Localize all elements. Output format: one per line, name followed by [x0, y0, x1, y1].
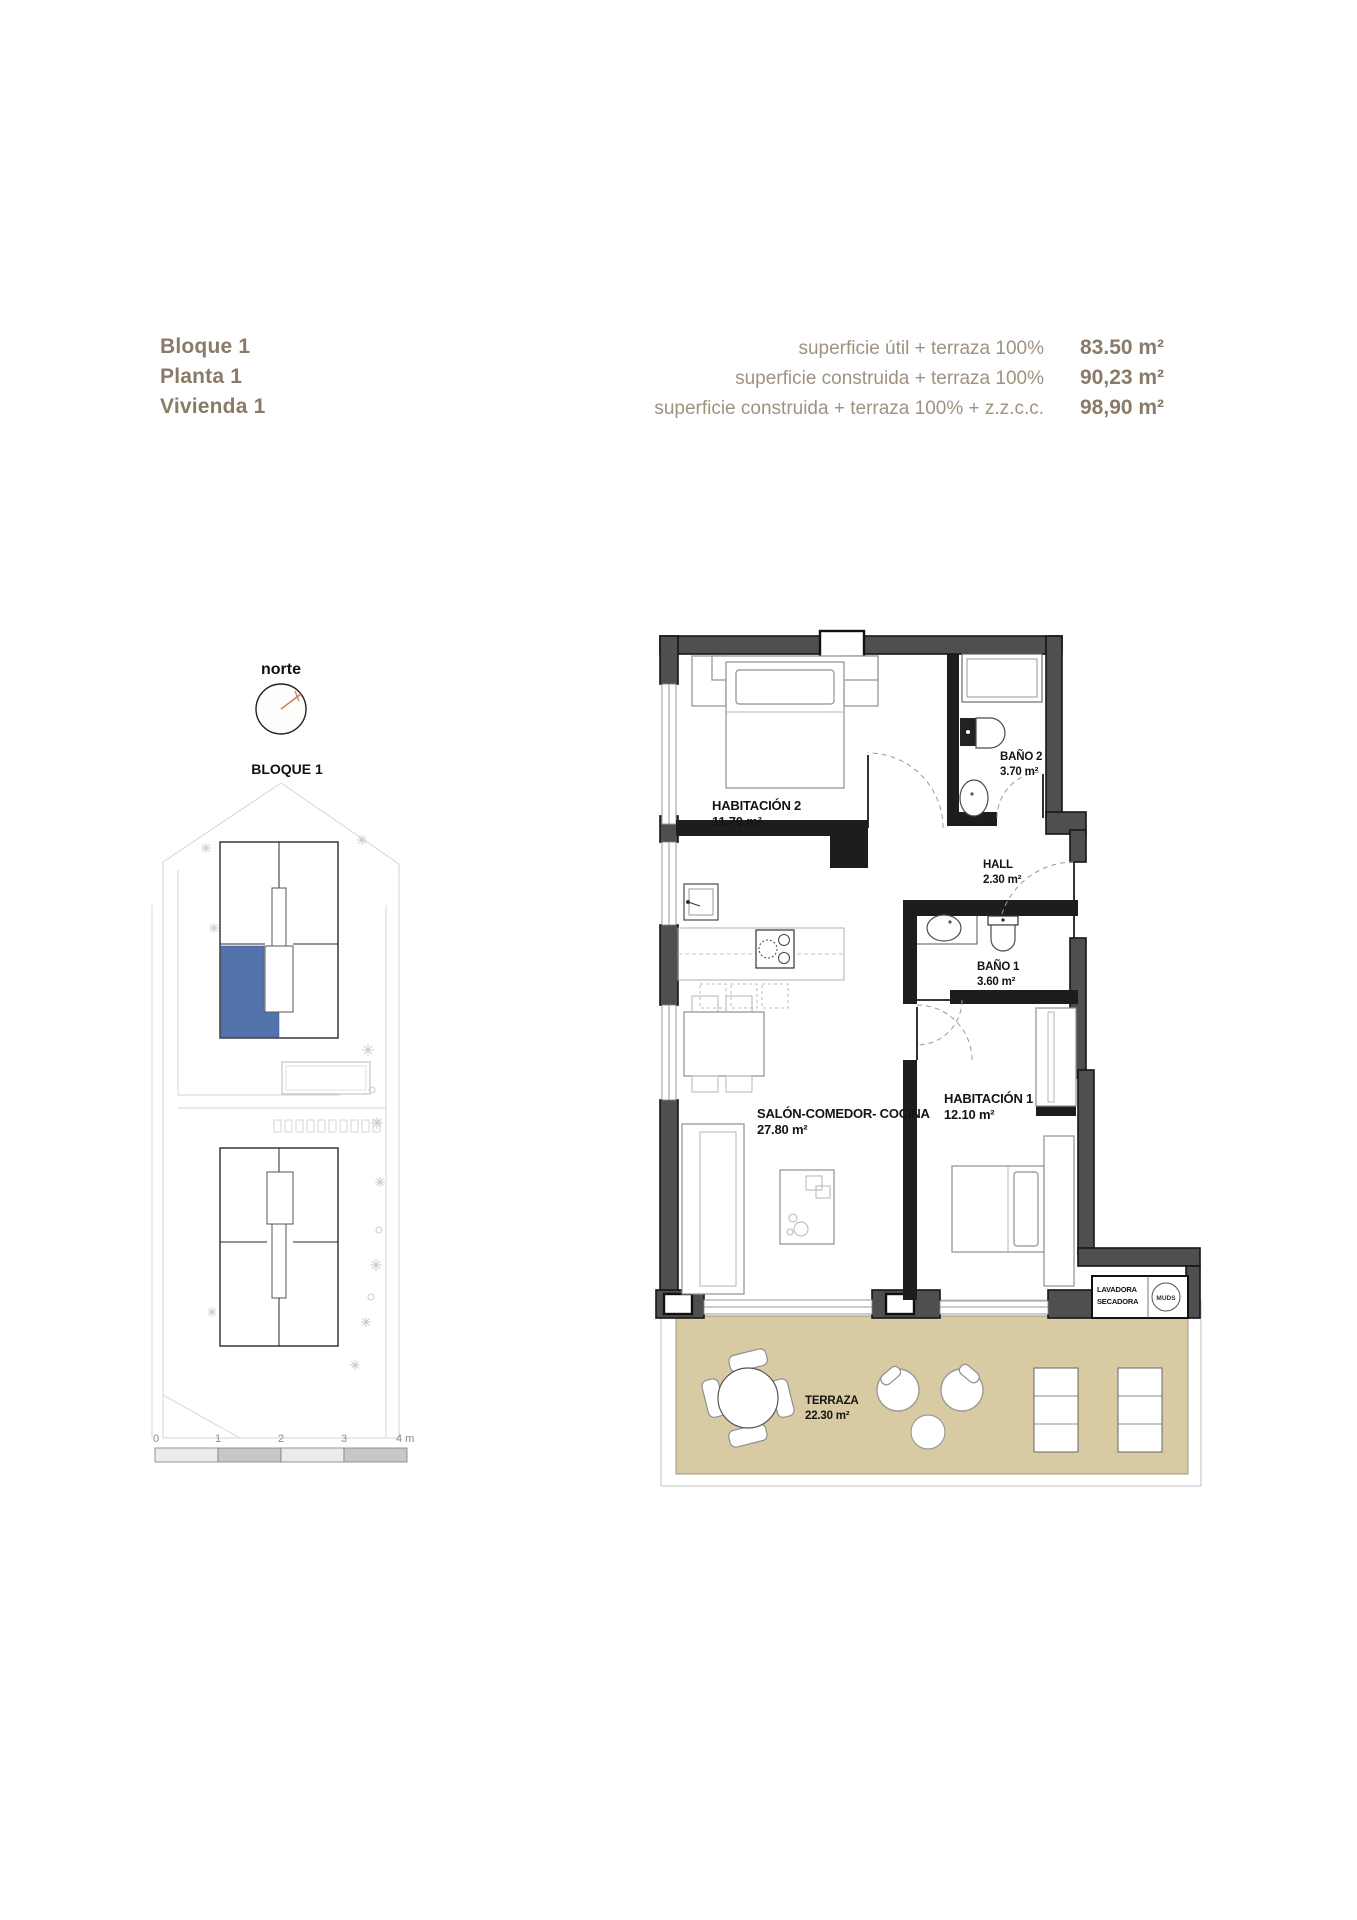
scale-tick: 3: [341, 1433, 347, 1445]
side-table: [911, 1415, 945, 1449]
site-building-2: [220, 1148, 338, 1346]
washbasin: [927, 915, 961, 941]
plan-canvas: norte BLOQUE 1: [0, 0, 1357, 1920]
room-label-bedroom2: HABITACIÓN 2: [712, 798, 801, 813]
room-label-hall: HALL: [983, 859, 1013, 871]
scale-tick: 0: [153, 1433, 159, 1445]
bath2-fixtures: [960, 654, 1042, 816]
bath1-fixtures: [917, 915, 1018, 951]
room-label-living: SALÓN-COMEDOR- COCINA: [757, 1106, 931, 1121]
room-label-terrace: TERRAZA: [805, 1395, 859, 1407]
toilet: [976, 718, 1005, 748]
wardrobe: [1036, 1008, 1076, 1106]
living-furniture: [682, 996, 834, 1294]
toilet: [991, 925, 1015, 951]
scale-tick: 2: [278, 1433, 284, 1445]
washbasin: [960, 780, 988, 816]
north-label: norte: [261, 661, 301, 678]
room-label-bedroom1: HABITACIÓN 1: [944, 1091, 1033, 1106]
room-area-bedroom1: 12.10 m²: [944, 1107, 995, 1122]
pillow: [1014, 1172, 1038, 1246]
door-arc-bedroom2: [868, 753, 943, 828]
room-area-terrace: 22.30 m²: [805, 1410, 850, 1422]
laundry-line2: SECADORA: [1097, 1297, 1139, 1306]
site-block-label: BLOQUE 1: [251, 761, 323, 777]
chair: [726, 1076, 752, 1092]
sofa: [682, 1124, 744, 1294]
floorplan-page: Bloque 1 Planta 1 Vivienda 1 superficie …: [0, 0, 1357, 1920]
room-area-living: 27.80 m²: [757, 1122, 808, 1137]
muds-label: MUDS: [1156, 1295, 1176, 1302]
scale-tick: 1: [215, 1433, 221, 1445]
door-arc-bath1: [917, 1000, 962, 1045]
pillow: [736, 670, 834, 704]
site-pool: [282, 1062, 370, 1094]
chair: [726, 996, 752, 1012]
shower: [962, 654, 1042, 702]
room-area-hall: 2.30 m²: [983, 874, 1022, 886]
room-area-bath1: 3.60 m²: [977, 976, 1016, 988]
room-area-bedroom2: 11.70 m²: [712, 814, 763, 829]
scale-bar: 0 1 2 3 4 m: [153, 1433, 414, 1462]
room-label-bath2: BAÑO 2: [1000, 750, 1042, 763]
round-table: [718, 1368, 778, 1428]
site-parking-row: [274, 1120, 380, 1132]
closet-column: [1044, 1136, 1074, 1286]
site-plan: BLOQUE 1: [152, 761, 399, 1438]
chair: [692, 996, 718, 1012]
door-arc-bath2: [997, 772, 1043, 818]
compass: norte: [256, 661, 306, 734]
scale-end-label: 4 m: [396, 1433, 414, 1445]
laundry-closet: LAVADORA SECADORA MUDS: [1092, 1276, 1188, 1318]
roof-shaft: [820, 631, 864, 658]
door-arc-bedroom1: [917, 1005, 972, 1060]
kitchen-furniture: [678, 884, 844, 1008]
floor-plan: LAVADORA SECADORA MUDS: [656, 631, 1201, 1486]
bedroom2-furniture: [692, 656, 878, 788]
cooktop: [756, 930, 794, 968]
room-label-bath1: BAÑO 1: [977, 960, 1020, 973]
chair: [692, 1076, 718, 1092]
front-window-box: [664, 1294, 692, 1314]
site-building-1: [220, 842, 338, 1038]
sunbed: [1118, 1368, 1162, 1452]
laundry-line1: LAVADORA: [1097, 1285, 1138, 1294]
sunbed: [1034, 1368, 1078, 1452]
room-area-bath2: 3.70 m²: [1000, 766, 1039, 778]
dining-table: [684, 1012, 764, 1076]
